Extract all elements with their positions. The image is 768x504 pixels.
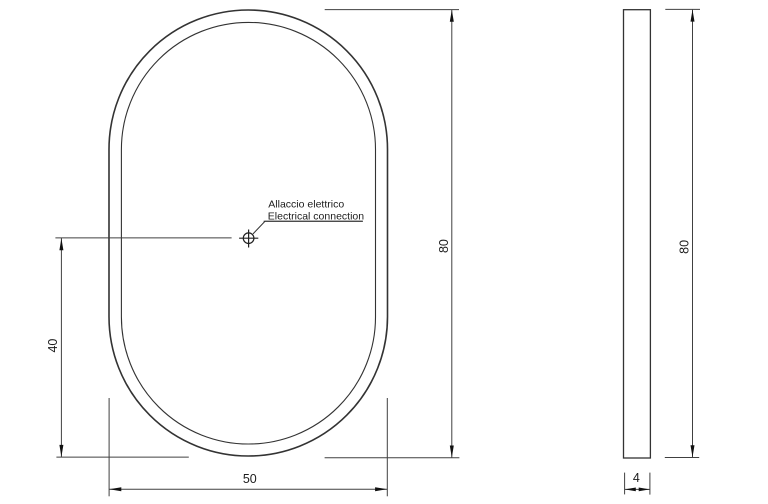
svg-text:4: 4 bbox=[633, 471, 640, 485]
svg-text:40: 40 bbox=[46, 339, 60, 353]
svg-text:80: 80 bbox=[437, 239, 451, 253]
svg-text:50: 50 bbox=[243, 472, 257, 486]
svg-text:80: 80 bbox=[678, 240, 692, 254]
svg-text:Allaccio elettrico: Allaccio elettrico bbox=[268, 198, 344, 210]
